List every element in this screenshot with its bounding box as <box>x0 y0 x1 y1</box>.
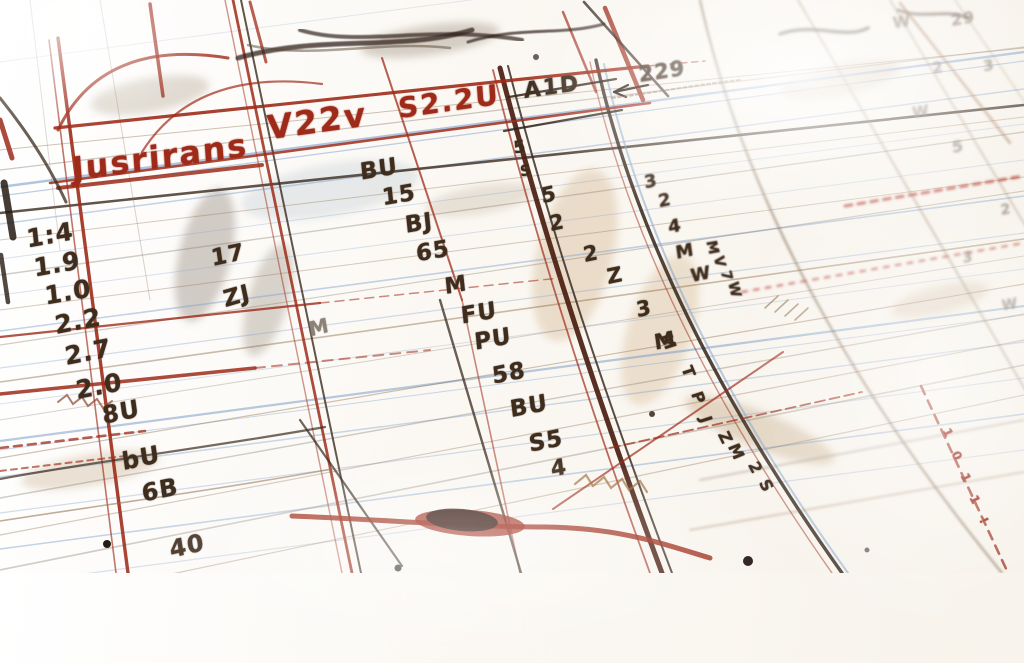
sketch-photo: JusriransV22vS2.2UA1D2295S1:41.91.02.22.… <box>0 0 1024 573</box>
ink-drawing-layer <box>0 0 1024 573</box>
